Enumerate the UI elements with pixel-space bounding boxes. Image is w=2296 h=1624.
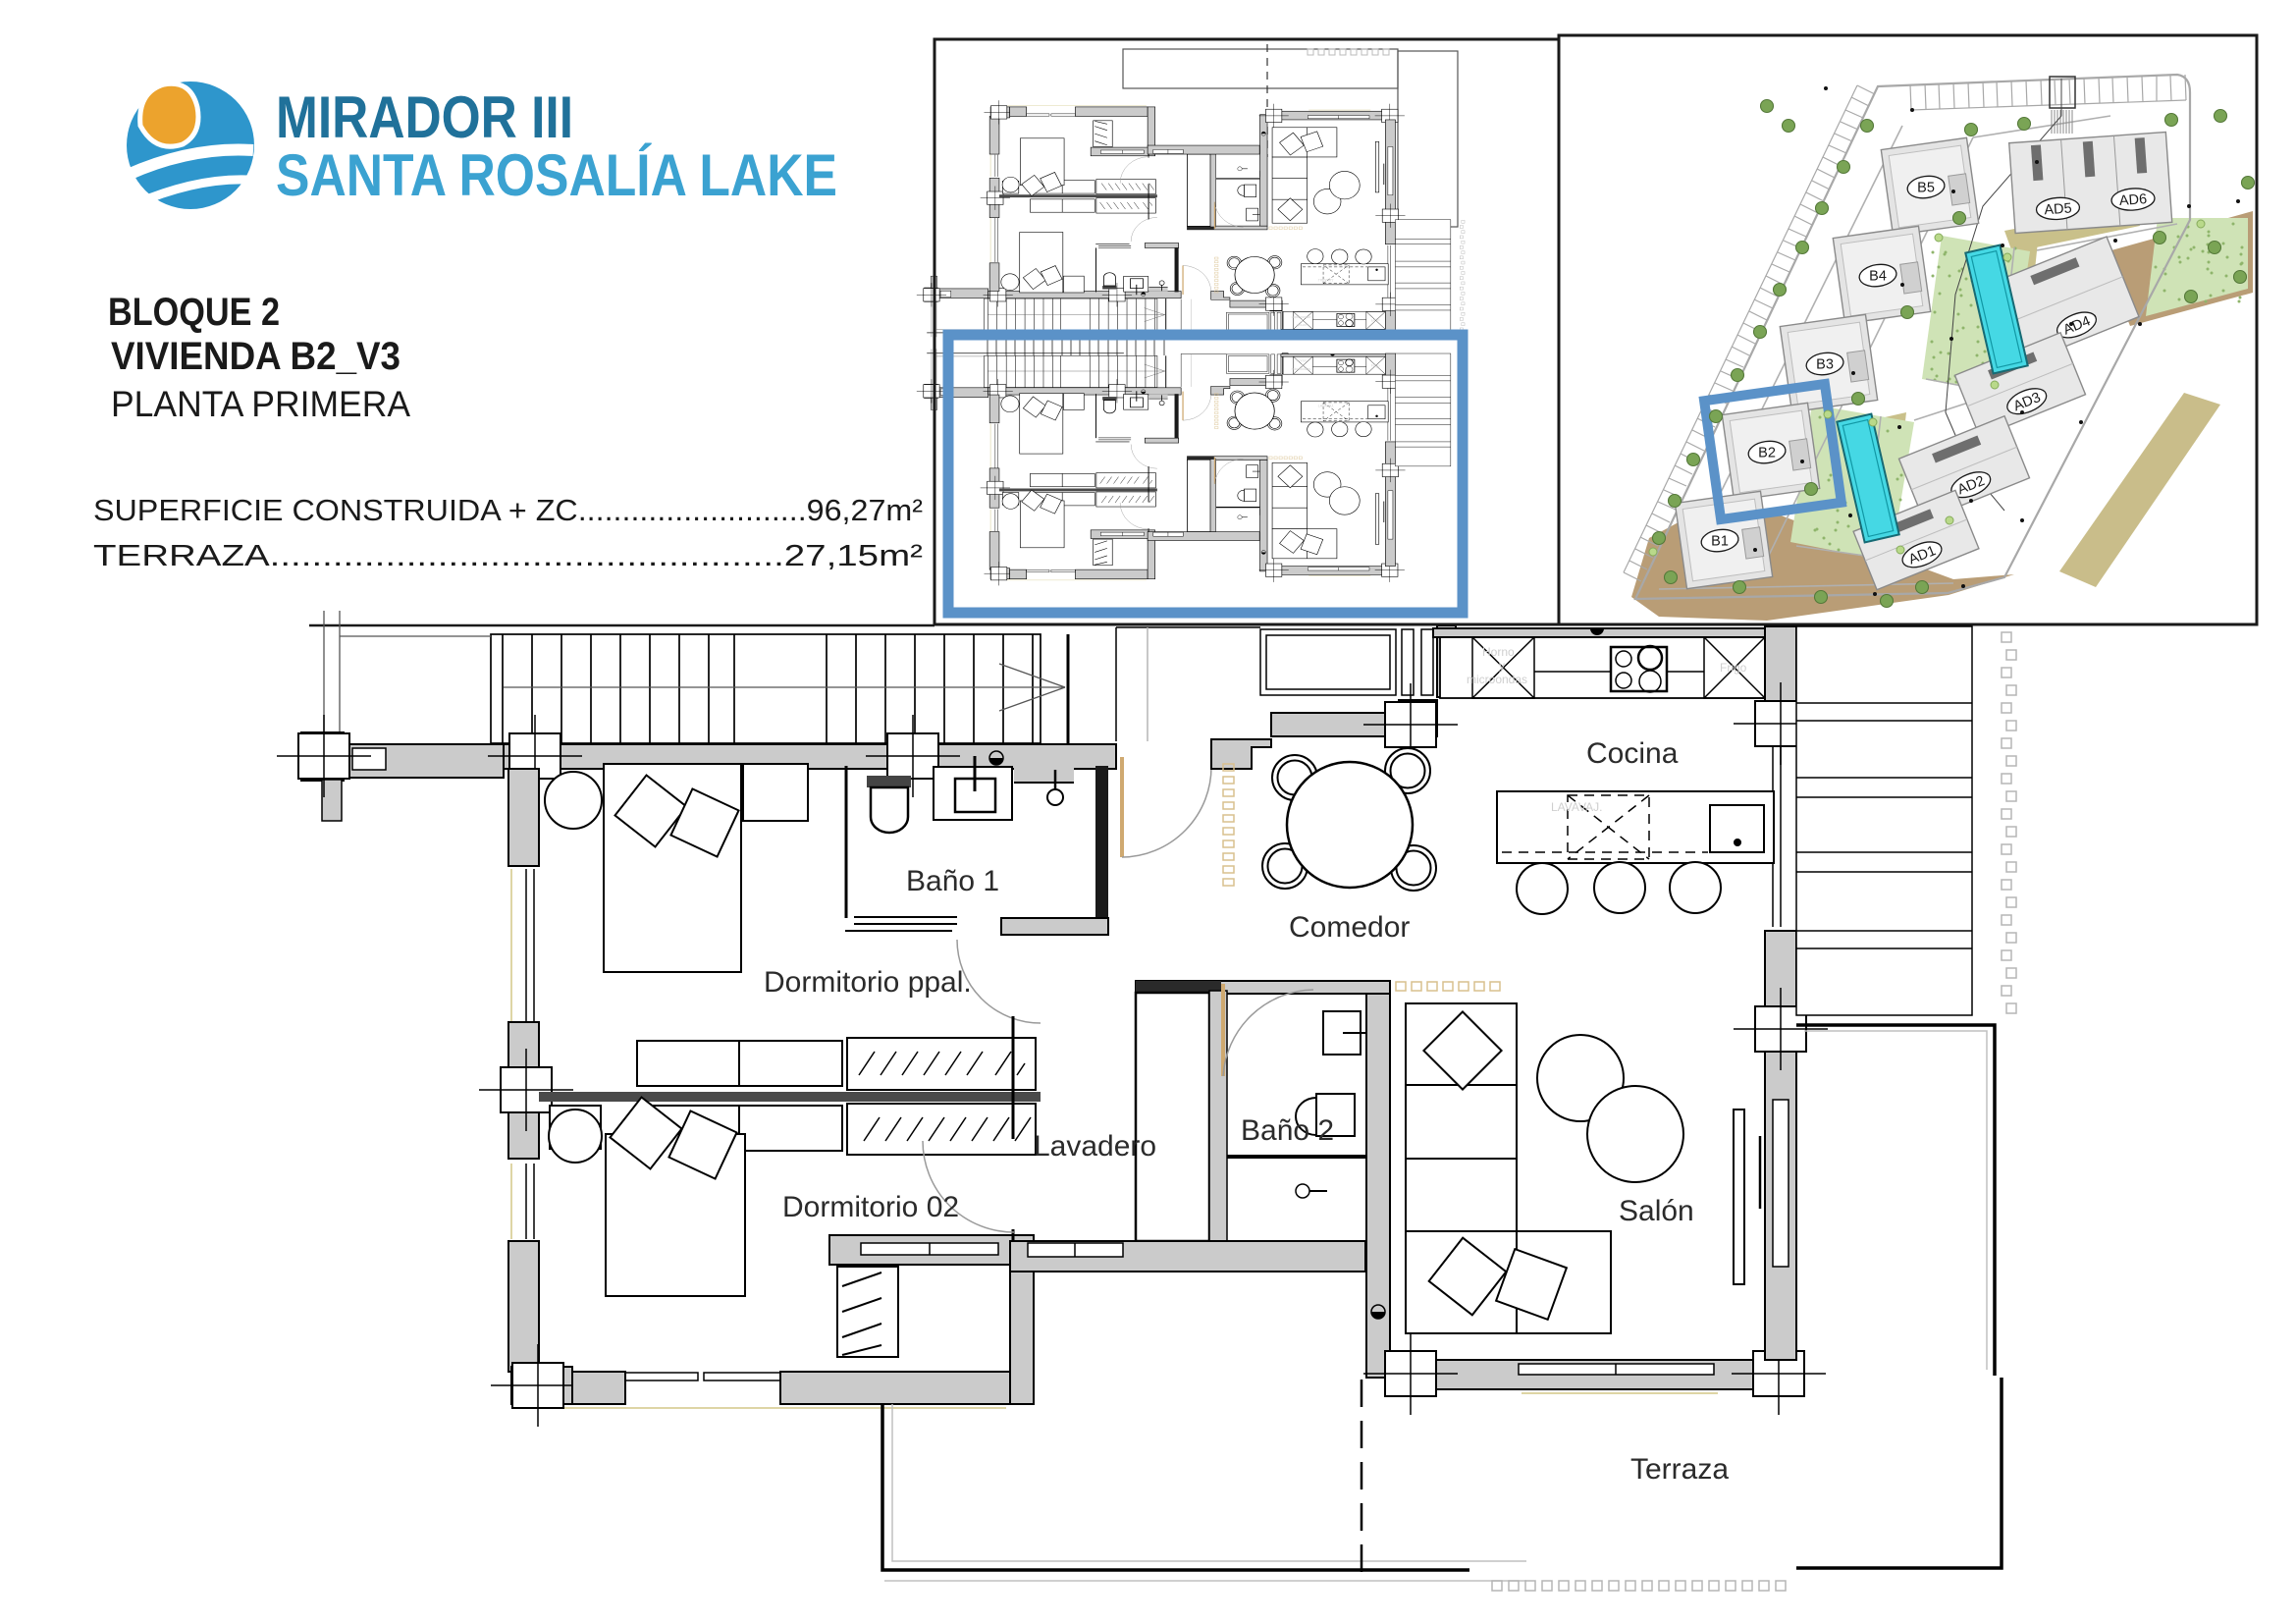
svg-text:Baño 1: Baño 1 — [906, 865, 999, 897]
svg-text:SANTA ROSALÍA LAKE: SANTA ROSALÍA LAKE — [276, 142, 837, 208]
svg-text:VIVIENDA B2_V3: VIVIENDA B2_V3 — [111, 335, 400, 378]
svg-text:BLOQUE 2: BLOQUE 2 — [108, 291, 280, 334]
svg-text:B4: B4 — [1869, 269, 1887, 285]
svg-text:Comedor: Comedor — [1289, 911, 1410, 944]
svg-text:B1: B1 — [1711, 534, 1729, 550]
svg-text:SUPERFICIE CONSTRUIDA + ZC....: SUPERFICIE CONSTRUIDA + ZC..............… — [93, 493, 923, 527]
svg-text:Dormitorio ppal.: Dormitorio ppal. — [764, 966, 972, 999]
svg-text:Baño 2: Baño 2 — [1241, 1114, 1334, 1147]
svg-text:B5: B5 — [1917, 181, 1935, 196]
svg-text:TERRAZA.......................: TERRAZA.................................… — [93, 538, 923, 572]
svg-text:Dormitorio 02: Dormitorio 02 — [782, 1191, 959, 1223]
svg-text:B3: B3 — [1816, 357, 1834, 373]
svg-text:AD5: AD5 — [2044, 200, 2072, 218]
svg-text:Terraza: Terraza — [1630, 1453, 1729, 1486]
svg-text:MIRADOR III: MIRADOR III — [276, 84, 573, 150]
svg-text:Lavadero: Lavadero — [1034, 1130, 1156, 1163]
svg-text:AD6: AD6 — [2118, 191, 2147, 209]
svg-text:B2: B2 — [1758, 446, 1776, 461]
svg-text:Salón: Salón — [1619, 1195, 1694, 1227]
svg-text:PLANTA PRIMERA: PLANTA PRIMERA — [111, 384, 410, 424]
svg-text:Cocina: Cocina — [1586, 737, 1679, 770]
